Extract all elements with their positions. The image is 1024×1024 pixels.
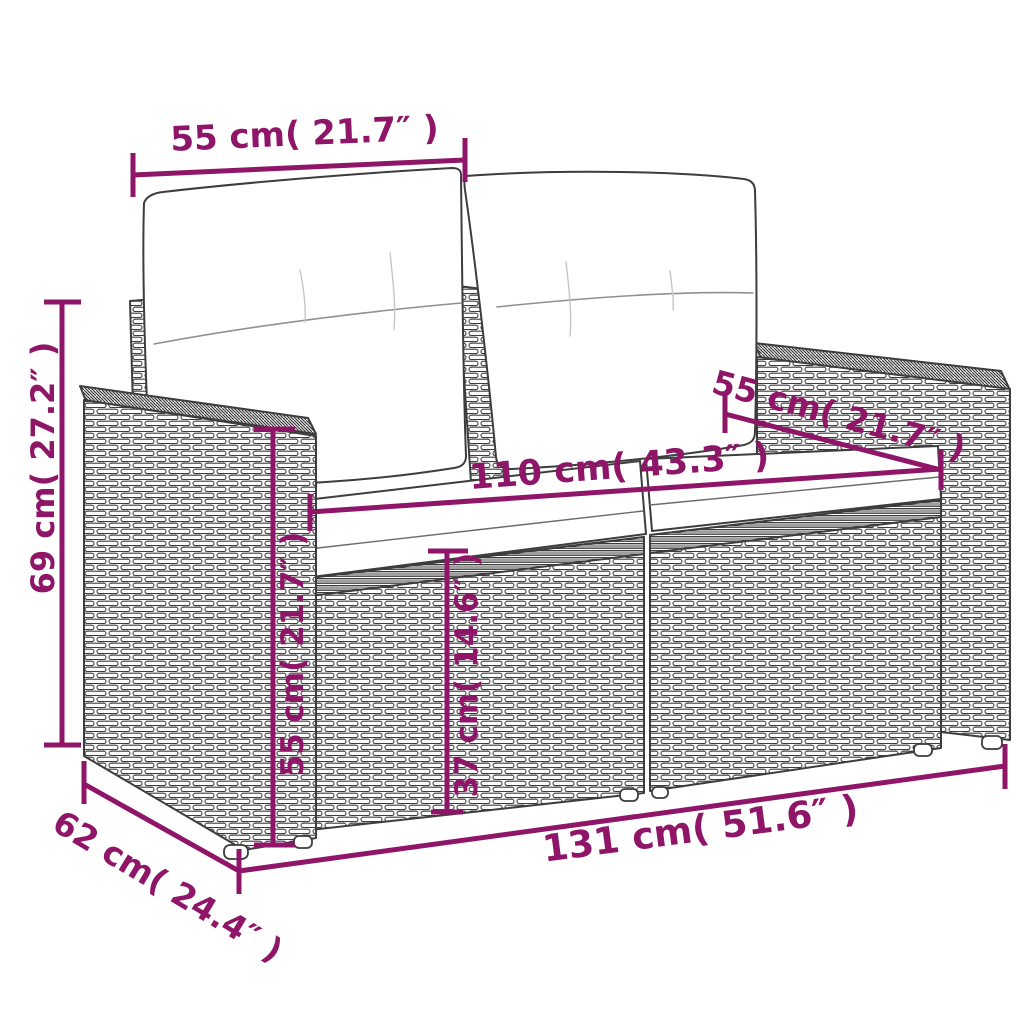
sofa-foot [224, 845, 248, 859]
sofa-dimensions-diagram: 55 cm( 21.7″ ) 69 cm( 27.2″ ) 55 cm( 21.… [0, 0, 1024, 1024]
sofa-foot [914, 744, 932, 756]
dimension-label-armrest-height: 55 cm( 21.7″ ) [275, 532, 311, 777]
sofa-foot [294, 836, 312, 848]
seat-base-right [650, 500, 941, 791]
sofa-foot [982, 736, 1002, 749]
back-cushion-right [464, 172, 756, 469]
back-cushion-right-body [464, 172, 756, 469]
sofa-foot [620, 789, 638, 801]
product-dimension-image: 55 cm( 21.7″ ) 69 cm( 27.2″ ) 55 cm( 21.… [0, 0, 1024, 1024]
sofa-foot [652, 787, 668, 798]
dimension-label-overall-height: 69 cm( 27.2″ ) [24, 342, 62, 595]
dimension-label-seat-height: 37 cm( 14.6″ ) [449, 553, 485, 798]
